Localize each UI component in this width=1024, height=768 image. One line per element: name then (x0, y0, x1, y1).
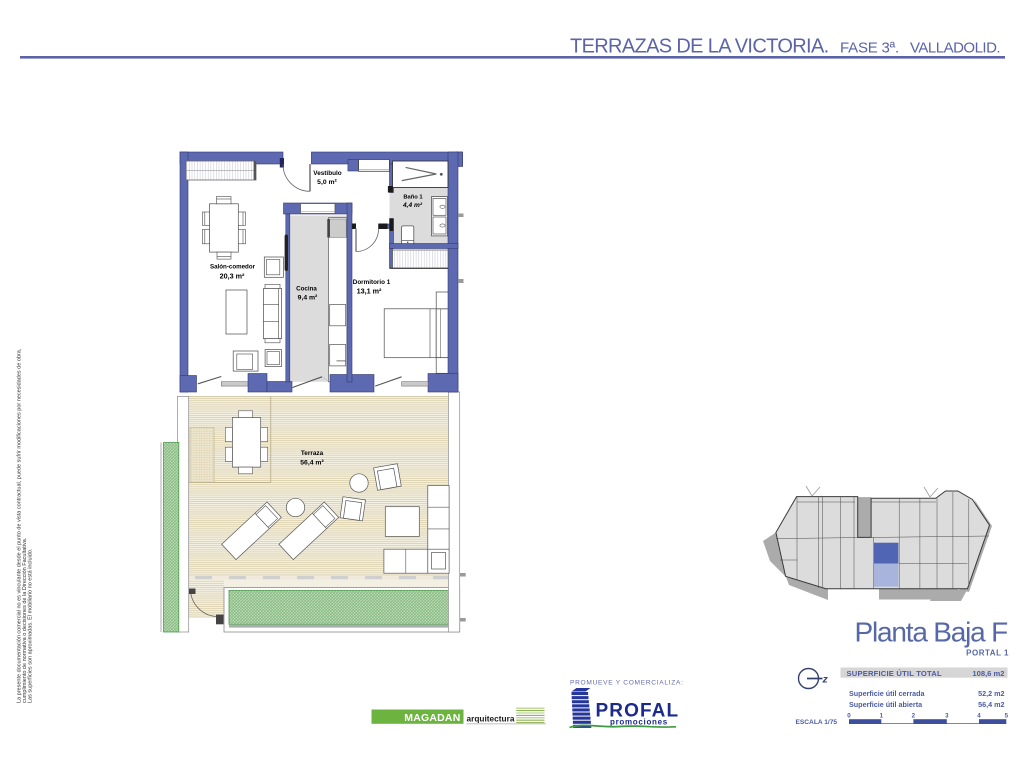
svg-text:Cocina: Cocina (296, 286, 317, 293)
svg-text:2: 2 (912, 713, 916, 720)
svg-text:108,6 m2: 108,6 m2 (972, 669, 1004, 678)
svg-text:z: z (822, 674, 829, 686)
svg-text:Superficie útil abierta: Superficie útil abierta (849, 700, 923, 709)
svg-text:Baño 1: Baño 1 (403, 195, 423, 201)
svg-text:Dormitorio 1: Dormitorio 1 (353, 279, 391, 286)
svg-text:SUPERFICIE ÚTIL TOTAL: SUPERFICIE ÚTIL TOTAL (847, 669, 942, 678)
svg-text:Vestíbulo: Vestíbulo (313, 170, 342, 177)
svg-text:20,3 m²: 20,3 m² (220, 272, 245, 281)
svg-text:Terraza: Terraza (301, 450, 324, 457)
svg-text:5,0 m²: 5,0 m² (317, 179, 337, 186)
svg-text:4,4 m²: 4,4 m² (402, 202, 423, 209)
svg-text:3: 3 (945, 713, 949, 720)
svg-text:4: 4 (977, 713, 981, 720)
svg-text:VALLADOLID.: VALLADOLID. (910, 40, 1000, 57)
svg-text:0: 0 (847, 713, 851, 720)
svg-text:Superficie útil cerrada: Superficie útil cerrada (849, 689, 925, 698)
svg-text:56,4 m²: 56,4 m² (300, 460, 324, 467)
svg-text:PORTAL 1: PORTAL 1 (966, 649, 1009, 658)
svg-text:TERRAZAS DE LA VICTORIA.: TERRAZAS DE LA VICTORIA. (570, 36, 829, 58)
svg-text:Salón-comedor: Salón-comedor (210, 264, 256, 271)
svg-text:13,1 m²: 13,1 m² (357, 287, 382, 296)
svg-text:9,4 m²: 9,4 m² (298, 295, 318, 302)
svg-text:promociones: promociones (610, 718, 668, 727)
svg-text:52,2 m2: 52,2 m2 (978, 689, 1004, 698)
svg-text:ESCALA 1/75: ESCALA 1/75 (796, 719, 838, 726)
svg-text:1: 1 (880, 713, 884, 720)
svg-text:Las superficies son aproximada: Las superficies son aproximadas. El mobi… (28, 548, 34, 703)
svg-text:Planta Baja F: Planta Baja F (855, 617, 1008, 648)
svg-text:56,4 m2: 56,4 m2 (978, 700, 1004, 709)
svg-text:PROMUEVE Y COMERCIALIZA:: PROMUEVE Y COMERCIALIZA: (570, 680, 684, 687)
svg-text:MAGADAN: MAGADAN (404, 712, 460, 724)
svg-text:5: 5 (1005, 713, 1009, 720)
svg-text:arquitectura: arquitectura (467, 714, 515, 724)
svg-text:FASE 3ª.: FASE 3ª. (840, 40, 899, 57)
